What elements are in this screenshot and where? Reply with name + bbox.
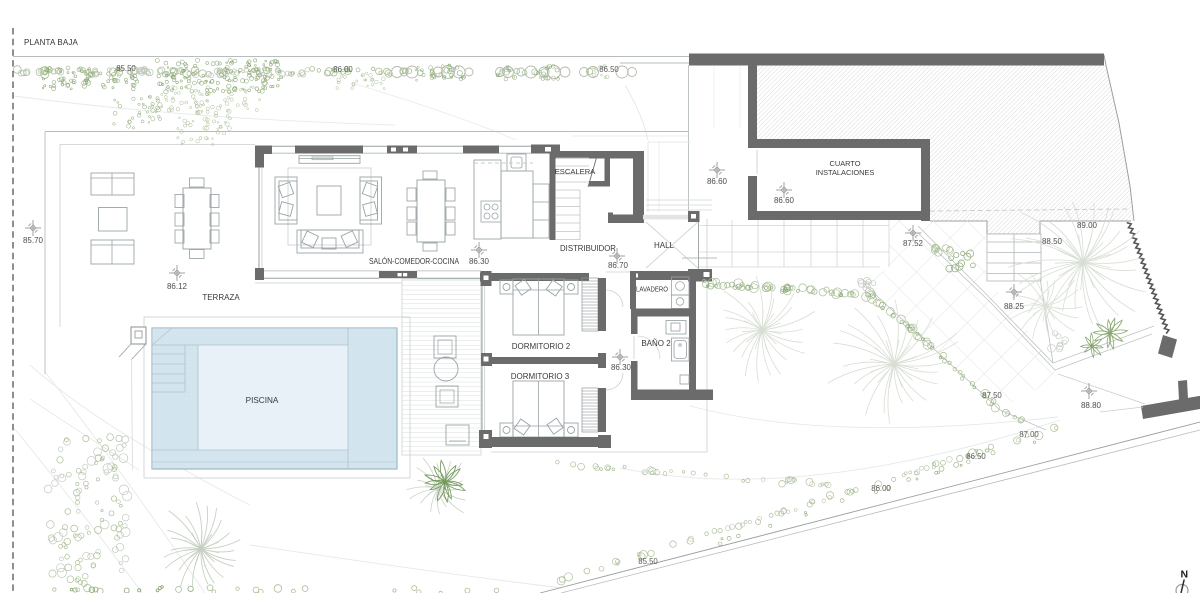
- svg-text:86.50: 86.50: [599, 65, 619, 74]
- svg-text:DORMITORIO 2: DORMITORIO 2: [512, 342, 571, 351]
- svg-text:85.50: 85.50: [638, 557, 658, 566]
- svg-text:BAÑO 2: BAÑO 2: [641, 339, 671, 348]
- svg-text:89.00: 89.00: [1077, 221, 1098, 230]
- svg-text:88.25: 88.25: [1004, 302, 1025, 311]
- svg-text:PLANTA BAJA: PLANTA BAJA: [24, 38, 78, 47]
- svg-text:DISTRIBUIDOR: DISTRIBUIDOR: [560, 244, 616, 253]
- svg-text:87.00: 87.00: [1019, 430, 1039, 439]
- svg-text:N: N: [1181, 569, 1189, 581]
- svg-text:86.60: 86.60: [774, 196, 795, 205]
- svg-text:86.60: 86.60: [707, 177, 728, 186]
- svg-text:85.50: 85.50: [116, 64, 136, 73]
- svg-text:86.00: 86.00: [871, 484, 891, 493]
- svg-text:86.70: 86.70: [608, 261, 629, 270]
- svg-text:PISCINA: PISCINA: [246, 396, 279, 405]
- svg-text:CUARTO: CUARTO: [830, 159, 861, 168]
- svg-text:86.00: 86.00: [333, 65, 353, 74]
- svg-text:85.70: 85.70: [23, 236, 44, 245]
- svg-text:SALÓN-COMEDOR-COCINA: SALÓN-COMEDOR-COCINA: [369, 257, 460, 266]
- svg-text:88.50: 88.50: [1042, 237, 1063, 246]
- svg-text:HALL: HALL: [654, 241, 675, 250]
- svg-text:87.52: 87.52: [903, 239, 924, 248]
- svg-text:88.80: 88.80: [1081, 401, 1102, 410]
- svg-text:INSTALACIONES: INSTALACIONES: [816, 168, 875, 177]
- svg-text:86.30: 86.30: [611, 363, 632, 372]
- svg-text:TERRAZA: TERRAZA: [202, 293, 240, 302]
- svg-text:LAVADERO: LAVADERO: [636, 285, 668, 294]
- svg-text:87.50: 87.50: [982, 391, 1002, 400]
- svg-text:DORMITORIO 3: DORMITORIO 3: [511, 372, 570, 381]
- svg-text:86.30: 86.30: [469, 257, 490, 266]
- svg-text:86.12: 86.12: [167, 282, 188, 291]
- svg-text:ESCALERA: ESCALERA: [555, 167, 596, 176]
- svg-text:86.50: 86.50: [966, 452, 986, 461]
